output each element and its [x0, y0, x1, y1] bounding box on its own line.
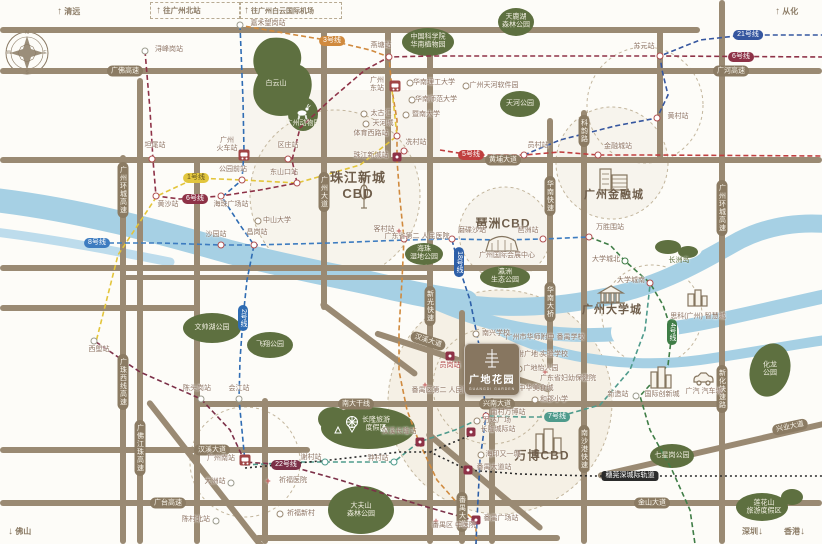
station-marker-uc-south: [647, 280, 654, 287]
university-icon: [255, 218, 262, 225]
poi-teemall: 天河城: [373, 120, 394, 128]
station-marker-tanwei: [149, 156, 156, 163]
station-label-jinrongcheng: 金融城站: [604, 143, 632, 151]
metro-badge-line22: 22号线: [271, 460, 301, 470]
station-interchange-icon-panyu-ave: [464, 466, 473, 475]
up-arrow-icon: ↑: [244, 5, 249, 16]
poi-haiyin-mall: 海印又一城: [486, 451, 521, 459]
station-label-gongyuanqian: 公园前站: [219, 166, 247, 174]
hospital-cross-icon: +: [265, 476, 270, 486]
park-label-feixiang: 飞翔公园: [256, 341, 284, 349]
metro-badge-line21: 21号线: [733, 30, 763, 40]
station-marker-xiecun: [322, 459, 329, 466]
road-label-gfjz-expwy: 广佛江珠高速: [135, 420, 146, 476]
road-label-keyun-rd: 科韵路: [579, 115, 590, 147]
park-label-changzhou-island: 长洲岛: [669, 257, 690, 265]
station-marker-gongyuanqian: [239, 177, 246, 184]
station-label-yantang: 燕塘站: [371, 42, 392, 50]
poi-hejun-primary-school: 和郡小学: [540, 396, 568, 404]
station-label-huangcun: 黄村站: [668, 113, 689, 121]
station-label-suyuan: 苏元站: [634, 43, 655, 51]
train-station-icon-gz-railway: [239, 150, 250, 161]
metro-badge-line1: 1号线: [183, 173, 209, 183]
station-label-yuancun: 员村站: [528, 142, 549, 150]
project-logo-icon: [482, 348, 502, 370]
station-label-yuangang: 员岗站: [440, 362, 461, 370]
station-marker-uc-north: [622, 258, 629, 265]
station-label-tanwei: 坦尾站: [145, 142, 166, 150]
mall-icon: [363, 121, 370, 128]
road-label-jinshan-ave: 金山大道: [634, 498, 670, 509]
station-label-shayuan: 沙园站: [206, 231, 227, 239]
station-marker-dongshankou: [294, 180, 301, 187]
university-town-icon: [597, 286, 625, 303]
station-label-dazhou: 大洲站: [205, 478, 226, 486]
station-interchange-icon-yuangang: [446, 352, 455, 361]
edge-gzbei: ↑ 往广州北站: [156, 5, 201, 16]
station-marker-quzhuang: [285, 156, 292, 163]
mall-icon: [478, 452, 485, 459]
metro-badge-line18: 18号线: [454, 247, 464, 277]
poi-gd-women-hospital: 广东省妇幼保健院: [540, 375, 596, 383]
station-marker-wanshengwei: [586, 234, 593, 241]
station-label-tiyuxilu: 体育西路站: [354, 130, 389, 138]
school-icon: [473, 331, 480, 338]
park-label-haizhu-wetland: 海珠 湿地公园: [410, 246, 438, 263]
station-marker-changgang: [251, 242, 258, 249]
station-label-haizhu-sq: 海珠广场站: [214, 201, 249, 209]
station-marker-suyuan: [657, 53, 664, 60]
poi-china-food-city: 中华美食城: [519, 385, 554, 393]
metro-badge-line4: 4号线: [667, 319, 677, 345]
park-label-lianhuashan: 莲花山 旅游度假区: [747, 500, 782, 517]
up-arrow-icon: ↑: [775, 6, 780, 17]
station-interchange-icon-zhujiangxincheng: [393, 153, 402, 162]
road-label-gz-ring-expwy-west: 广州环城高速: [118, 162, 129, 218]
financial-city-buildings-icon: [600, 169, 627, 190]
road-label-gz-ring-expwy-east: 广州环城高速: [717, 180, 728, 236]
compass-north-label: N: [25, 30, 29, 36]
road-label-gz-ave: 广州大道: [319, 172, 330, 212]
station-interchange-icon-hanxichanglong: [416, 438, 425, 447]
poi-scut: 华南理工大学: [413, 79, 455, 87]
station-label-quzhuang: 区庄站: [278, 142, 299, 150]
up-arrow-icon: ↑: [57, 6, 62, 17]
station-marker-dazhou: [228, 480, 235, 487]
station-marker-jinrongcheng: [595, 152, 602, 159]
poi-qifu-village: 祈福新村: [287, 510, 315, 518]
down-arrow-icon: ↓: [758, 526, 763, 537]
metro-badge-line5: 5号线: [458, 150, 484, 160]
park-label-dafushan: 大夫山 森林公园: [347, 503, 375, 520]
station-label-gz-railway: 广州 火车站: [217, 137, 238, 153]
station-marker-huijiang: [236, 396, 243, 403]
mall-icon: [474, 418, 481, 425]
park-label-tianluhu: 天鹿湖 森林公园: [502, 14, 530, 31]
compass-south-label: S: [25, 70, 28, 76]
station-label-pazhou: 琶洲站: [518, 227, 539, 235]
station-marker-chentougang: [198, 396, 205, 403]
station-label-panyu-ave: 番禺大道站: [477, 464, 512, 472]
metro-badge-line6-west: 6号线: [182, 194, 208, 204]
innovation-city-buildings-icon: [651, 367, 671, 388]
edge-conghua: ↑ 从化: [775, 6, 798, 17]
park-label-hualong: 化龙 公园: [763, 362, 777, 379]
station-label-changlong-ic: 长隆城际站: [481, 426, 516, 434]
road-label-nanda-trunk: 南大干线: [338, 399, 374, 410]
metro-badge-line8: 8号线: [84, 238, 110, 248]
station-marker-xinzao: [633, 393, 640, 400]
park-label-wenshuaihu: 文帅湖公园: [195, 324, 230, 332]
station-label-xinzao: 新造站: [608, 391, 629, 399]
school-icon: [532, 397, 539, 404]
compass-west-label: W: [7, 50, 12, 56]
station-label-chencunbei: 陈村北站: [182, 516, 210, 524]
edge-shenzhen: 深圳↓: [742, 526, 763, 537]
down-arrow-icon: ↓: [800, 526, 805, 537]
station-marker-modiesha: [449, 236, 456, 243]
station-marker-tiyuxilu: [394, 133, 401, 140]
poi-innovation-city: 国际创新城: [645, 391, 680, 399]
station-label-modiesha: 磨碟沙站: [458, 227, 486, 235]
mall-icon: [361, 111, 368, 118]
poi-software-park: 广州天河软件园: [470, 82, 519, 90]
park-label-baiyunshan: 白云山: [266, 80, 287, 88]
university-icon: [403, 112, 410, 119]
road-label-huangpu-ave: 黄埔大道: [485, 155, 521, 166]
metro-badge-line3: 3号线: [319, 36, 345, 46]
station-marker-zhongcun: [391, 459, 398, 466]
project-card-guangdi-garden: 广地花园 GUANGDI GARDEN: [464, 343, 520, 396]
intercity-rail-badge: 穗莞深城际轨道: [602, 471, 659, 481]
road-label-huanan-bridge: 华南大桥: [545, 282, 556, 322]
station-marker-shayuan: [218, 242, 225, 249]
station-label-uc-north: 大学城北: [592, 256, 620, 264]
station-label-huangsha: 黄沙站: [158, 201, 179, 209]
station-label-wanshengwei: 万胜围站: [596, 224, 624, 232]
poi-guangdi-yiren-garden: 广地怡人园: [524, 365, 559, 373]
poi-qifu-hospital: 祈福医院: [279, 477, 307, 485]
road-label-xingnan-ave: 兴南大道: [479, 399, 515, 410]
poi-canton-fair-complex: 广州国际会展中心: [479, 252, 535, 260]
park-label-qixinggang: 七星岗公园: [655, 452, 690, 460]
train-station-icon-gz-south: [240, 455, 251, 466]
park-label-zoo: 广州动物园: [286, 120, 321, 128]
convention-center-icon: [486, 237, 518, 252]
station-label-jiahewanggang: 嘉禾望岗站: [251, 20, 286, 28]
location-map: N E S W ↑ 清远 ↑ 往广州北站 ↑ 往广州白云国际机场 ↑ 从化 ↓ …: [0, 0, 822, 544]
poi-jinan-university: 暨南大学: [412, 111, 440, 119]
station-label-changgang: 昌岗站: [247, 229, 268, 237]
poi-scnu: 华南师范大学: [415, 96, 457, 104]
station-marker-yuancun: [521, 152, 528, 159]
station-label-gz-east: 广州 东站: [370, 77, 384, 93]
station-label-huijiang: 会江站: [229, 385, 250, 393]
metro-badge-line7: 7号线: [544, 412, 570, 422]
residential-icon: [277, 511, 284, 518]
station-marker-haizhu-sq: [218, 193, 225, 200]
down-arrow-icon: ↓: [8, 526, 13, 537]
station-marker-xiancun: [401, 148, 408, 155]
edge-hongkong: 香港↓: [784, 526, 805, 537]
edge-airport: ↑ 往广州白云国际机场: [244, 5, 314, 16]
station-label-xilang: 西塱站: [89, 346, 110, 354]
station-label-gz-south: 广州南站: [207, 455, 235, 463]
station-label-xiancun: 冼村站: [406, 139, 427, 147]
station-label-zhujiangxincheng: 珠江新城站: [354, 152, 389, 160]
station-label-panyu-sq: 番禺广场站: [484, 515, 519, 523]
station-marker-huangsha: [153, 193, 160, 200]
station-marker-xunfenggang: [142, 48, 149, 55]
tech-park-icon: [463, 83, 470, 90]
poi-nanxing-school: 南兴学校: [482, 330, 510, 338]
area-title-university-town: 广州大学城: [582, 304, 642, 318]
station-marker-xilang: [91, 338, 98, 345]
poi-gac-auto-city: 广汽 汽车城: [686, 388, 723, 396]
station-label-xiecun: 谢村站: [301, 454, 322, 462]
project-subtitle: GUANGDI GARDEN: [469, 387, 515, 391]
station-marker-chencunbei: [213, 518, 220, 525]
area-title-zhujiang-cbd: 珠江新城 CBD: [330, 170, 386, 203]
poi-taikoo-hui: 太古汇: [371, 110, 392, 118]
park-label-botanical-garden: 中国科学院 华南植物园: [411, 34, 446, 51]
road-label-xinguang-expwy: 新光快速: [425, 286, 436, 326]
intercity-station-icon-changlong: [467, 428, 476, 437]
road-label-guangfo-expwy: 广佛高速: [107, 66, 143, 77]
station-marker-pazhou: [540, 236, 547, 243]
poi-cisco-smart-city: 思科(广州) 智慧城: [670, 313, 726, 321]
poi-panyu-tcm-hospital: 番禺区 中医院: [432, 522, 476, 530]
edge-foshan: ↓ 佛山: [8, 526, 31, 537]
metro-badge-line6-east: 6号线: [728, 52, 754, 62]
road-label-hanxi-ave-west: 汉溪大道: [194, 445, 230, 456]
train-station-icon-gz-east: [390, 81, 401, 92]
car-icon: [694, 373, 713, 385]
park-label-yingzhou: 瀛洲 生态公园: [491, 269, 519, 286]
poi-gd2-hospital: 广东省第二 人民医院: [385, 233, 450, 241]
road-label-guangzhu-w-expwy: 广珠西线高速: [118, 354, 129, 410]
road-label-nansha-port-expwy: 南沙港快速: [579, 425, 590, 473]
poi-wanda-plaza: 万达广场: [483, 417, 511, 425]
station-label-uc-south: 大学城南: [617, 277, 645, 285]
station-marker-huangcun: [654, 115, 661, 122]
edge-qingyuan: ↑ 清远: [57, 6, 80, 17]
project-name: 广地花园: [469, 371, 515, 386]
station-label-zhongcun: 钟村站: [368, 455, 389, 463]
compass-east-label: E: [43, 50, 46, 56]
poi-hsfz-panyu-school: 广州市华师附中 番禺学校: [506, 334, 585, 342]
area-title-wanbo-cbd: 万博CBD: [515, 449, 570, 464]
station-label-xunfenggang: 浔峰岗站: [155, 46, 183, 54]
area-title-financial-city: 广州金融城: [584, 189, 644, 203]
up-arrow-icon: ↑: [156, 5, 161, 16]
cisco-smart-city-buildings-icon: [688, 290, 707, 306]
station-marker-jiahewanggang: [237, 22, 244, 29]
road-label-huanan-expwy: 华南快速: [545, 176, 556, 216]
station-label-nancunwanbo: 南村万博站: [491, 409, 526, 417]
poi-sysu: 中山大学: [263, 217, 291, 225]
road-label-guangtai-expwy: 广台高速: [150, 498, 186, 509]
station-marker-yantang: [386, 54, 393, 61]
metro-badge-line2: 2号线: [238, 305, 248, 331]
station-label-hanxichanglong: 汉溪长隆站: [382, 428, 417, 436]
road-label-guanghe-expwy: 广河高速: [713, 66, 749, 77]
station-label-dongshankou: 东山口站: [270, 169, 298, 177]
park-label-tianhe-park: 天河公园: [506, 100, 534, 108]
station-label-chentougang: 陈头岗站: [183, 385, 211, 393]
